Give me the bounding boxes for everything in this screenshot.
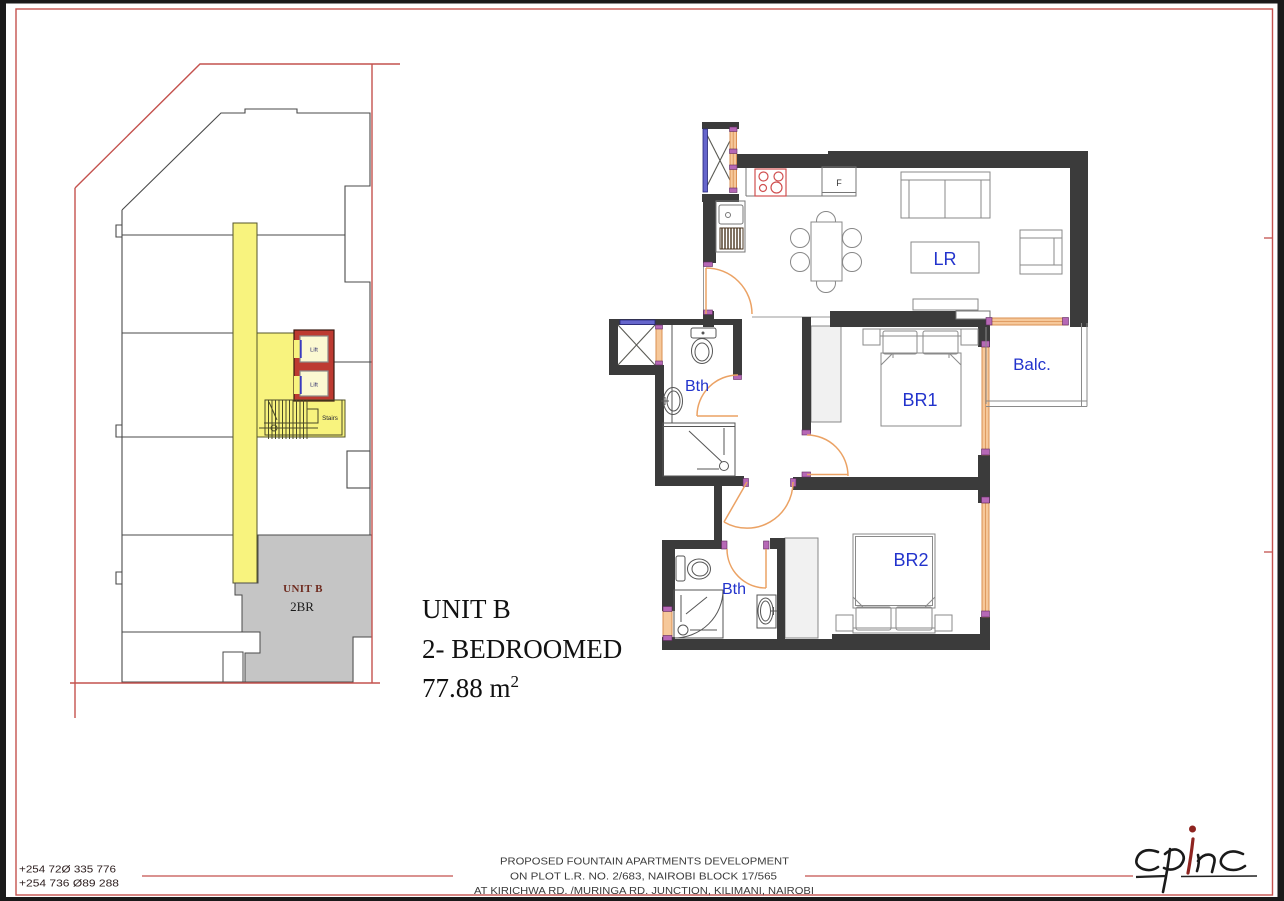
svg-text:PROPOSED FOUNTAIN APARTMENTS D: PROPOSED FOUNTAIN APARTMENTS DEVELOPMENT <box>500 856 790 868</box>
svg-text:BR1: BR1 <box>902 390 937 410</box>
svg-text:+254 72Ø 335 776: +254 72Ø 335 776 <box>19 865 116 876</box>
svg-text:Lift: Lift <box>310 383 318 389</box>
svg-text:F: F <box>836 178 842 188</box>
svg-text:Bth: Bth <box>722 581 746 598</box>
svg-text:UNIT B: UNIT B <box>283 583 323 595</box>
svg-text:ON PLOT L.R. NO. 2/683, NAIROB: ON PLOT L.R. NO. 2/683, NAIROBI BLOCK 17… <box>510 871 777 883</box>
svg-text:Stairs: Stairs <box>322 415 338 422</box>
svg-text:BR2: BR2 <box>893 550 928 570</box>
svg-text:+254 736 Ø89 288: +254 736 Ø89 288 <box>19 879 120 890</box>
svg-text:UNIT B: UNIT B <box>422 594 511 624</box>
svg-text:Lift: Lift <box>310 348 318 354</box>
svg-text:LR: LR <box>933 249 956 269</box>
svg-text:2BR: 2BR <box>290 599 314 614</box>
svg-text:Bth: Bth <box>685 378 709 395</box>
svg-text:77.88 m2: 77.88 m2 <box>422 672 519 703</box>
svg-text:AT KIRICHWA RD. /MURINGA RD. J: AT KIRICHWA RD. /MURINGA RD. JUNCTION, K… <box>474 885 814 897</box>
svg-text:2- BEDROOMED: 2- BEDROOMED <box>422 634 622 664</box>
svg-text:Balc.: Balc. <box>1013 355 1051 374</box>
